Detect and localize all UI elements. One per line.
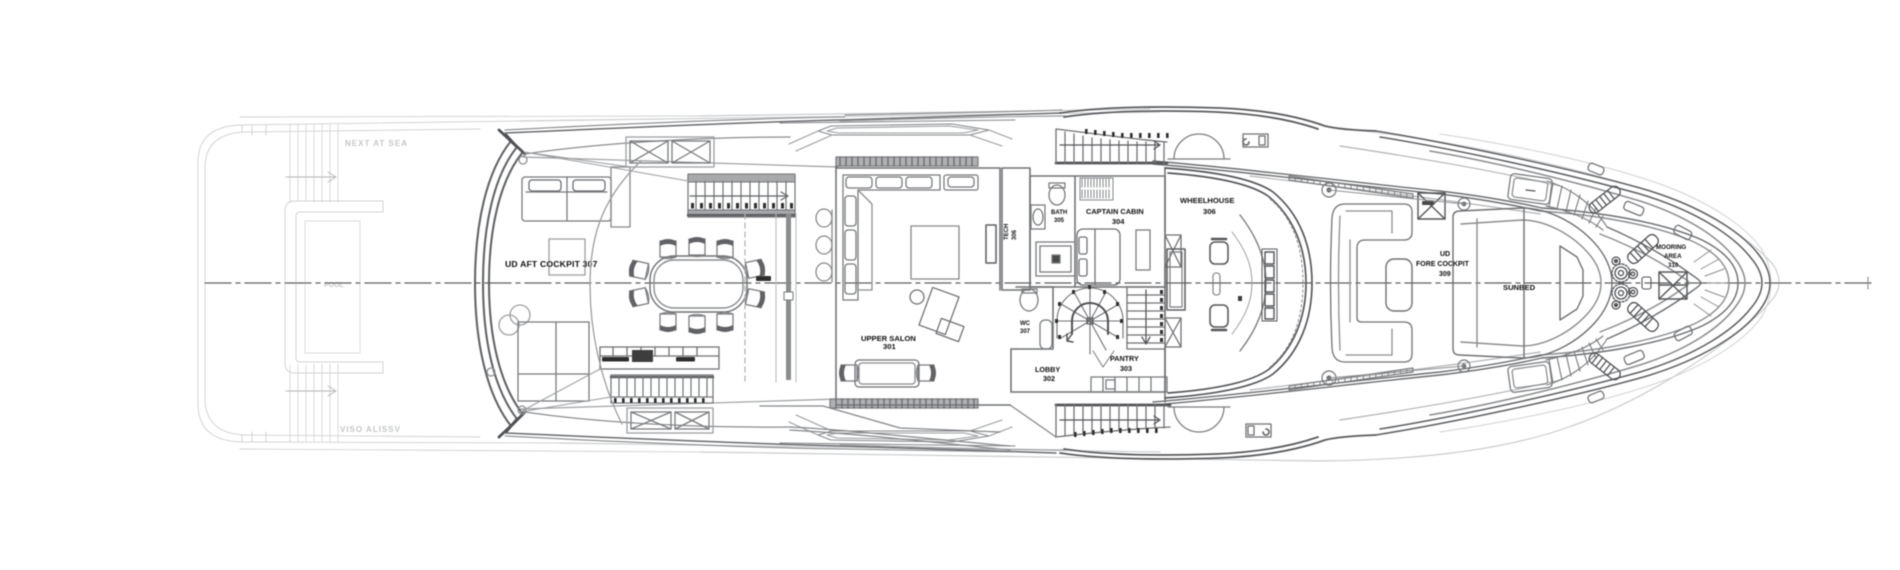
svg-text:CAPTAIN CABIN: CAPTAIN CABIN: [1086, 207, 1144, 216]
svg-text:UD: UD: [1440, 251, 1450, 258]
svg-text:306: 306: [1203, 207, 1216, 216]
svg-text:306: 306: [1012, 229, 1018, 240]
svg-text:MOORING: MOORING: [1656, 244, 1686, 251]
svg-text:310: 310: [1668, 262, 1679, 269]
svg-text:PANTRY: PANTRY: [1110, 354, 1139, 363]
svg-text:UD AFT COCKPIT 307: UD AFT COCKPIT 307: [505, 259, 598, 269]
svg-text:NEXT AT SEA: NEXT AT SEA: [345, 139, 408, 148]
svg-text:TECH: TECH: [1004, 224, 1010, 240]
svg-text:VISO ALISSV: VISO ALISSV: [340, 425, 401, 434]
svg-text:309: 309: [1439, 271, 1451, 278]
svg-text:304: 304: [1112, 217, 1125, 226]
svg-text:LOBBY: LOBBY: [1035, 365, 1060, 374]
svg-text:305: 305: [1054, 218, 1065, 224]
svg-text:SUNBED: SUNBED: [1503, 283, 1536, 292]
svg-text:301: 301: [883, 342, 896, 351]
svg-text:307: 307: [1020, 329, 1031, 335]
svg-text:FORE COCKPIT: FORE COCKPIT: [1416, 261, 1470, 268]
svg-text:BATH: BATH: [1051, 210, 1067, 216]
svg-text:WHEELHOUSE: WHEELHOUSE: [1180, 196, 1234, 205]
svg-text:AREA: AREA: [1664, 253, 1682, 260]
svg-text:303: 303: [1120, 364, 1132, 373]
svg-text:302: 302: [1043, 374, 1055, 383]
svg-text:WC: WC: [1020, 321, 1031, 327]
